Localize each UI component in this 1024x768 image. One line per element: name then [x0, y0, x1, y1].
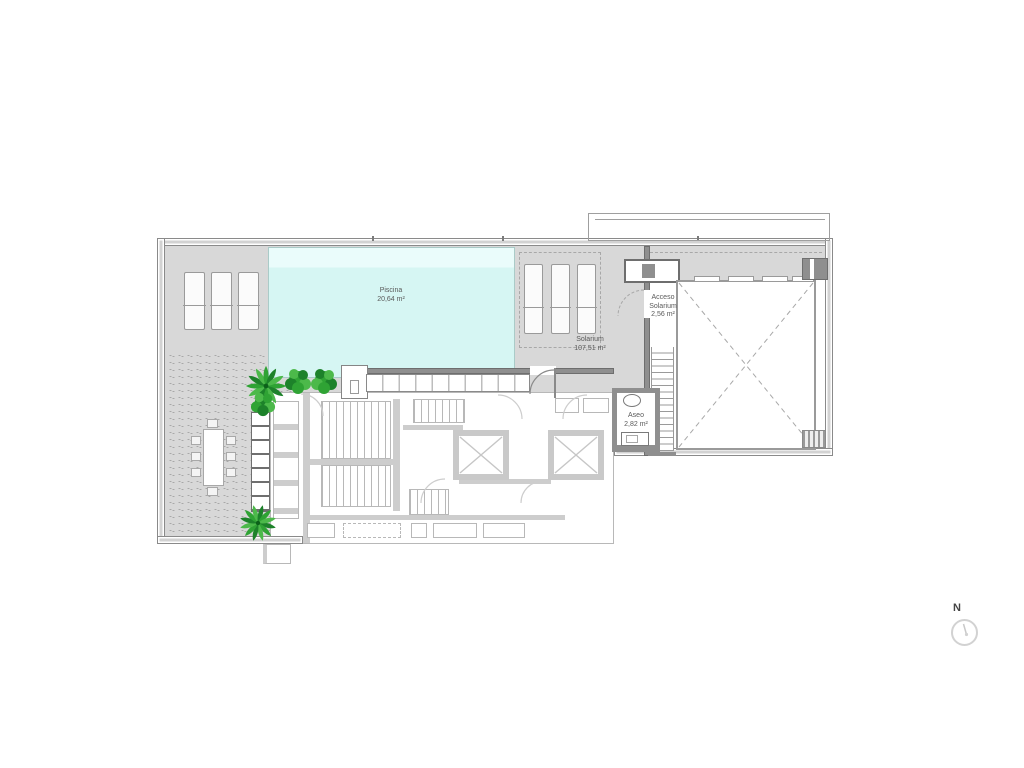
- lounger-fold-line: [210, 305, 233, 306]
- elevator-shaft: [453, 430, 509, 480]
- corner-grille: [802, 430, 826, 448]
- wall-joint-tick: [372, 236, 374, 241]
- lounger-fold-line: [576, 307, 597, 308]
- corner-pillar: [802, 258, 828, 280]
- chair: [207, 419, 218, 428]
- north-needle-icon: [953, 621, 980, 648]
- dining-table: [203, 429, 224, 486]
- chair: [226, 452, 236, 461]
- sun-lounger: [184, 272, 205, 330]
- lower-stairs: [321, 401, 391, 459]
- north-label: N: [940, 604, 974, 613]
- ghost-room: [433, 523, 477, 538]
- aseo-label: Aseo 2,82 m²: [614, 412, 658, 429]
- roof-access-box: [624, 259, 680, 283]
- void-x-icon: [678, 282, 814, 448]
- door-arc: [497, 394, 523, 420]
- palm-tree-icon: [237, 502, 279, 544]
- sink-icon: [623, 394, 641, 407]
- ghost-room: [343, 523, 401, 538]
- acceso-door-arc: [616, 288, 646, 318]
- wall-joint-tick: [502, 236, 504, 241]
- compass-circle: [951, 619, 978, 646]
- lounger-fold-line: [523, 307, 544, 308]
- parapet-wall-bottom-left: [157, 536, 303, 544]
- bush-icon: [250, 392, 276, 418]
- sun-lounger: [238, 272, 259, 330]
- roof-beam-mark: [728, 276, 754, 282]
- ghost-room: [307, 523, 335, 538]
- pool-area: 20,64 m²: [377, 296, 405, 303]
- bush-icon: [310, 368, 338, 396]
- roof-dashed-edge: [650, 252, 822, 253]
- elevator-shaft: [548, 430, 604, 480]
- sun-lounger: [577, 264, 596, 334]
- floor-plan: Piscina 20,64 m² Solarium 107,51 m² Acce…: [0, 0, 1024, 768]
- chimney-flue: [350, 380, 359, 394]
- ghost-room: [411, 523, 427, 538]
- void-room: [676, 280, 816, 450]
- chair: [191, 436, 201, 445]
- elevator-x-icon: [459, 436, 503, 474]
- lounger-fold-line: [237, 305, 260, 306]
- chair: [226, 468, 236, 477]
- acceso-line1: Acceso: [652, 294, 675, 301]
- planter-ladder: [251, 412, 270, 512]
- solarium-area: 107,51 m²: [574, 345, 606, 352]
- roof-beam-mark: [694, 276, 720, 282]
- door-arc: [528, 368, 556, 396]
- aseo-name: Aseo: [628, 412, 644, 419]
- chair: [226, 436, 236, 445]
- lower-stairs: [413, 399, 465, 423]
- chimney-structure: [341, 365, 368, 399]
- sun-lounger: [551, 264, 570, 334]
- acceso-solarium-label: Acceso Solarium 2,56 m²: [645, 294, 681, 320]
- acceso-line2: Solarium: [649, 303, 677, 310]
- pool-name: Piscina: [380, 287, 403, 294]
- lower-floor-stub: [263, 544, 291, 564]
- elevator-x-icon: [554, 436, 598, 474]
- lounger-fold-line: [550, 307, 571, 308]
- pool: [268, 247, 515, 378]
- door-arc: [520, 480, 544, 504]
- chair: [191, 452, 201, 461]
- sun-lounger: [524, 264, 543, 334]
- door-arc: [300, 393, 324, 417]
- toilet-icon: [621, 432, 649, 446]
- roof-outline-below: [588, 213, 830, 241]
- solarium-label: Solarium 107,51 m²: [556, 336, 624, 353]
- toilet-bowl: [626, 435, 638, 443]
- acceso-area: 2,56 m²: [651, 311, 675, 318]
- roof-access-hatch: [642, 264, 655, 278]
- pool-label: Piscina 20,64 m²: [331, 287, 451, 304]
- aseo-area: 2,82 m²: [624, 421, 648, 428]
- solarium-name: Solarium: [576, 336, 604, 343]
- sun-lounger: [211, 272, 232, 330]
- stair-base-mark: [648, 452, 676, 456]
- chair: [207, 487, 218, 496]
- outdoor-counter: [366, 374, 530, 392]
- roof-beam-mark: [762, 276, 788, 282]
- lower-stairs: [321, 465, 391, 507]
- bush-icon: [284, 368, 312, 396]
- lower-floor-wall: [393, 399, 400, 511]
- door-arc: [562, 394, 588, 420]
- roof-outline-inner-line: [595, 219, 825, 220]
- ghost-room: [483, 523, 525, 538]
- lower-floor-wall: [303, 515, 565, 520]
- door-arc: [420, 478, 446, 504]
- lounger-fold-line: [183, 305, 206, 306]
- parapet-wall-left: [157, 238, 165, 544]
- chair: [191, 468, 201, 477]
- north-indicator: N: [940, 604, 988, 652]
